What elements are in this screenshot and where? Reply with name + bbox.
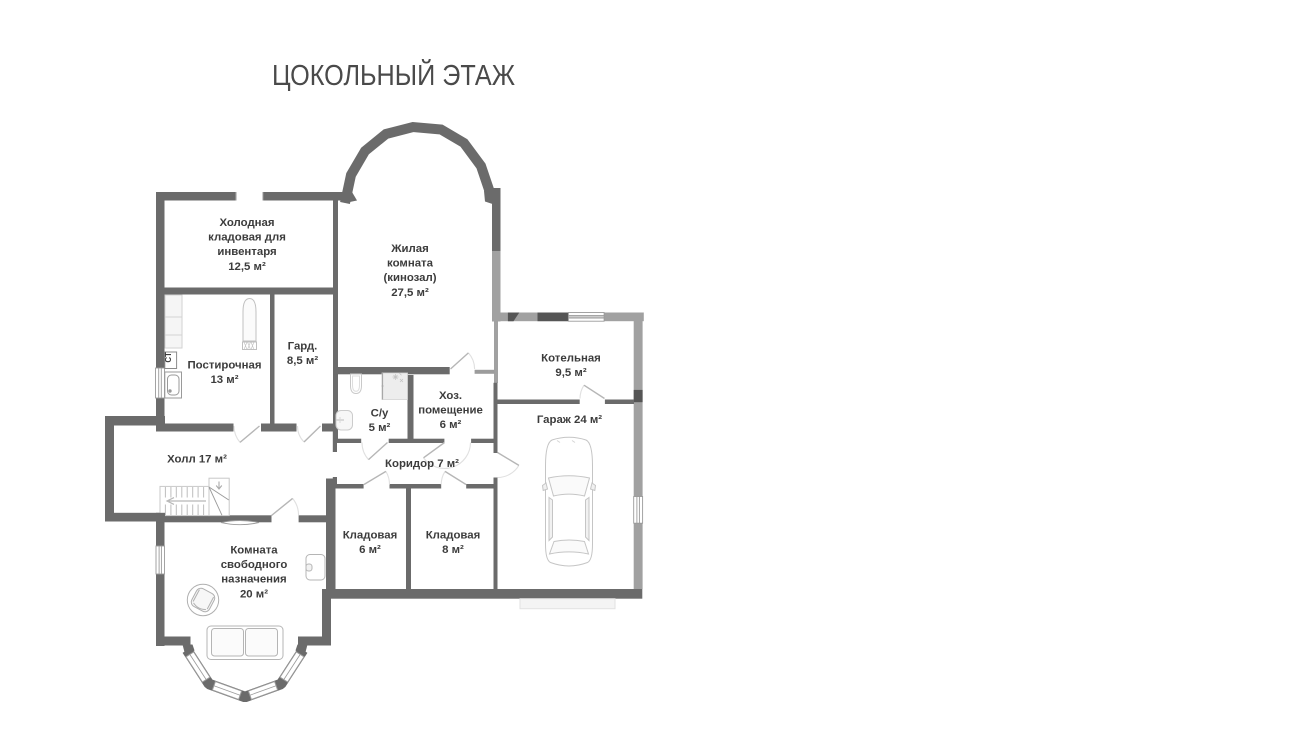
svg-text:СТ: СТ (164, 352, 173, 363)
svg-text:Холл 17 м²: Холл 17 м² (167, 454, 227, 466)
svg-text:Гараж 24 м²: Гараж 24 м² (537, 414, 602, 426)
svg-text:Коридор 7 м²: Коридор 7 м² (385, 458, 459, 470)
svg-text:ЦОКОЛЬНЫЙ ЭТАЖ: ЦОКОЛЬНЫЙ ЭТАЖ (272, 58, 515, 92)
